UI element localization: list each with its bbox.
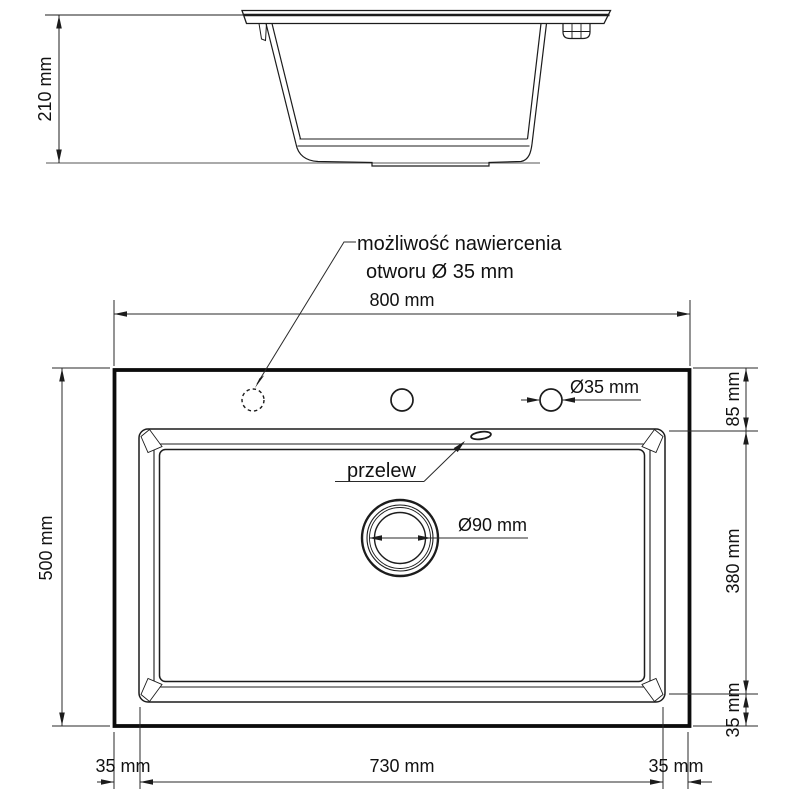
drill-note-line1: możliwość nawiercenia bbox=[357, 233, 562, 255]
bowl-bottom-offset-label: 35 mm bbox=[723, 682, 743, 737]
width-label: 800 mm bbox=[369, 290, 434, 310]
faucet-hole-diameter-label: Ø35 mm bbox=[570, 377, 639, 397]
depth-label: 500 mm bbox=[36, 515, 56, 580]
bowl-width-label: 730 mm bbox=[369, 756, 434, 776]
left-margin-label: 35 mm bbox=[95, 756, 150, 776]
side-basin-walls bbox=[266, 24, 547, 145]
sink-drawing-canvas: 210 mm 800 mm bbox=[0, 0, 800, 800]
top-view bbox=[115, 370, 690, 726]
bowl-length-label: 380 mm bbox=[723, 528, 743, 593]
overflow-label: przelew bbox=[347, 460, 416, 482]
deck-offset-label: 85 mm bbox=[723, 371, 743, 426]
side-view: 210 mm bbox=[35, 11, 611, 167]
side-rim-outline bbox=[242, 11, 611, 24]
side-basin-bottom-lines bbox=[298, 139, 530, 146]
side-overflow-grid bbox=[563, 24, 590, 39]
sink-outer-rect bbox=[115, 370, 690, 726]
right-margin-label: 35 mm bbox=[648, 756, 703, 776]
side-height-label: 210 mm bbox=[35, 56, 55, 121]
side-overflow-housing bbox=[563, 24, 590, 39]
drain-diameter-label: Ø90 mm bbox=[458, 515, 527, 535]
drill-note-leader-line bbox=[257, 242, 356, 384]
drill-note-line2: otworu Ø 35 mm bbox=[366, 261, 514, 283]
technical-drawing-page: 210 mm 800 mm bbox=[0, 0, 800, 800]
side-rim-clip bbox=[259, 24, 267, 41]
